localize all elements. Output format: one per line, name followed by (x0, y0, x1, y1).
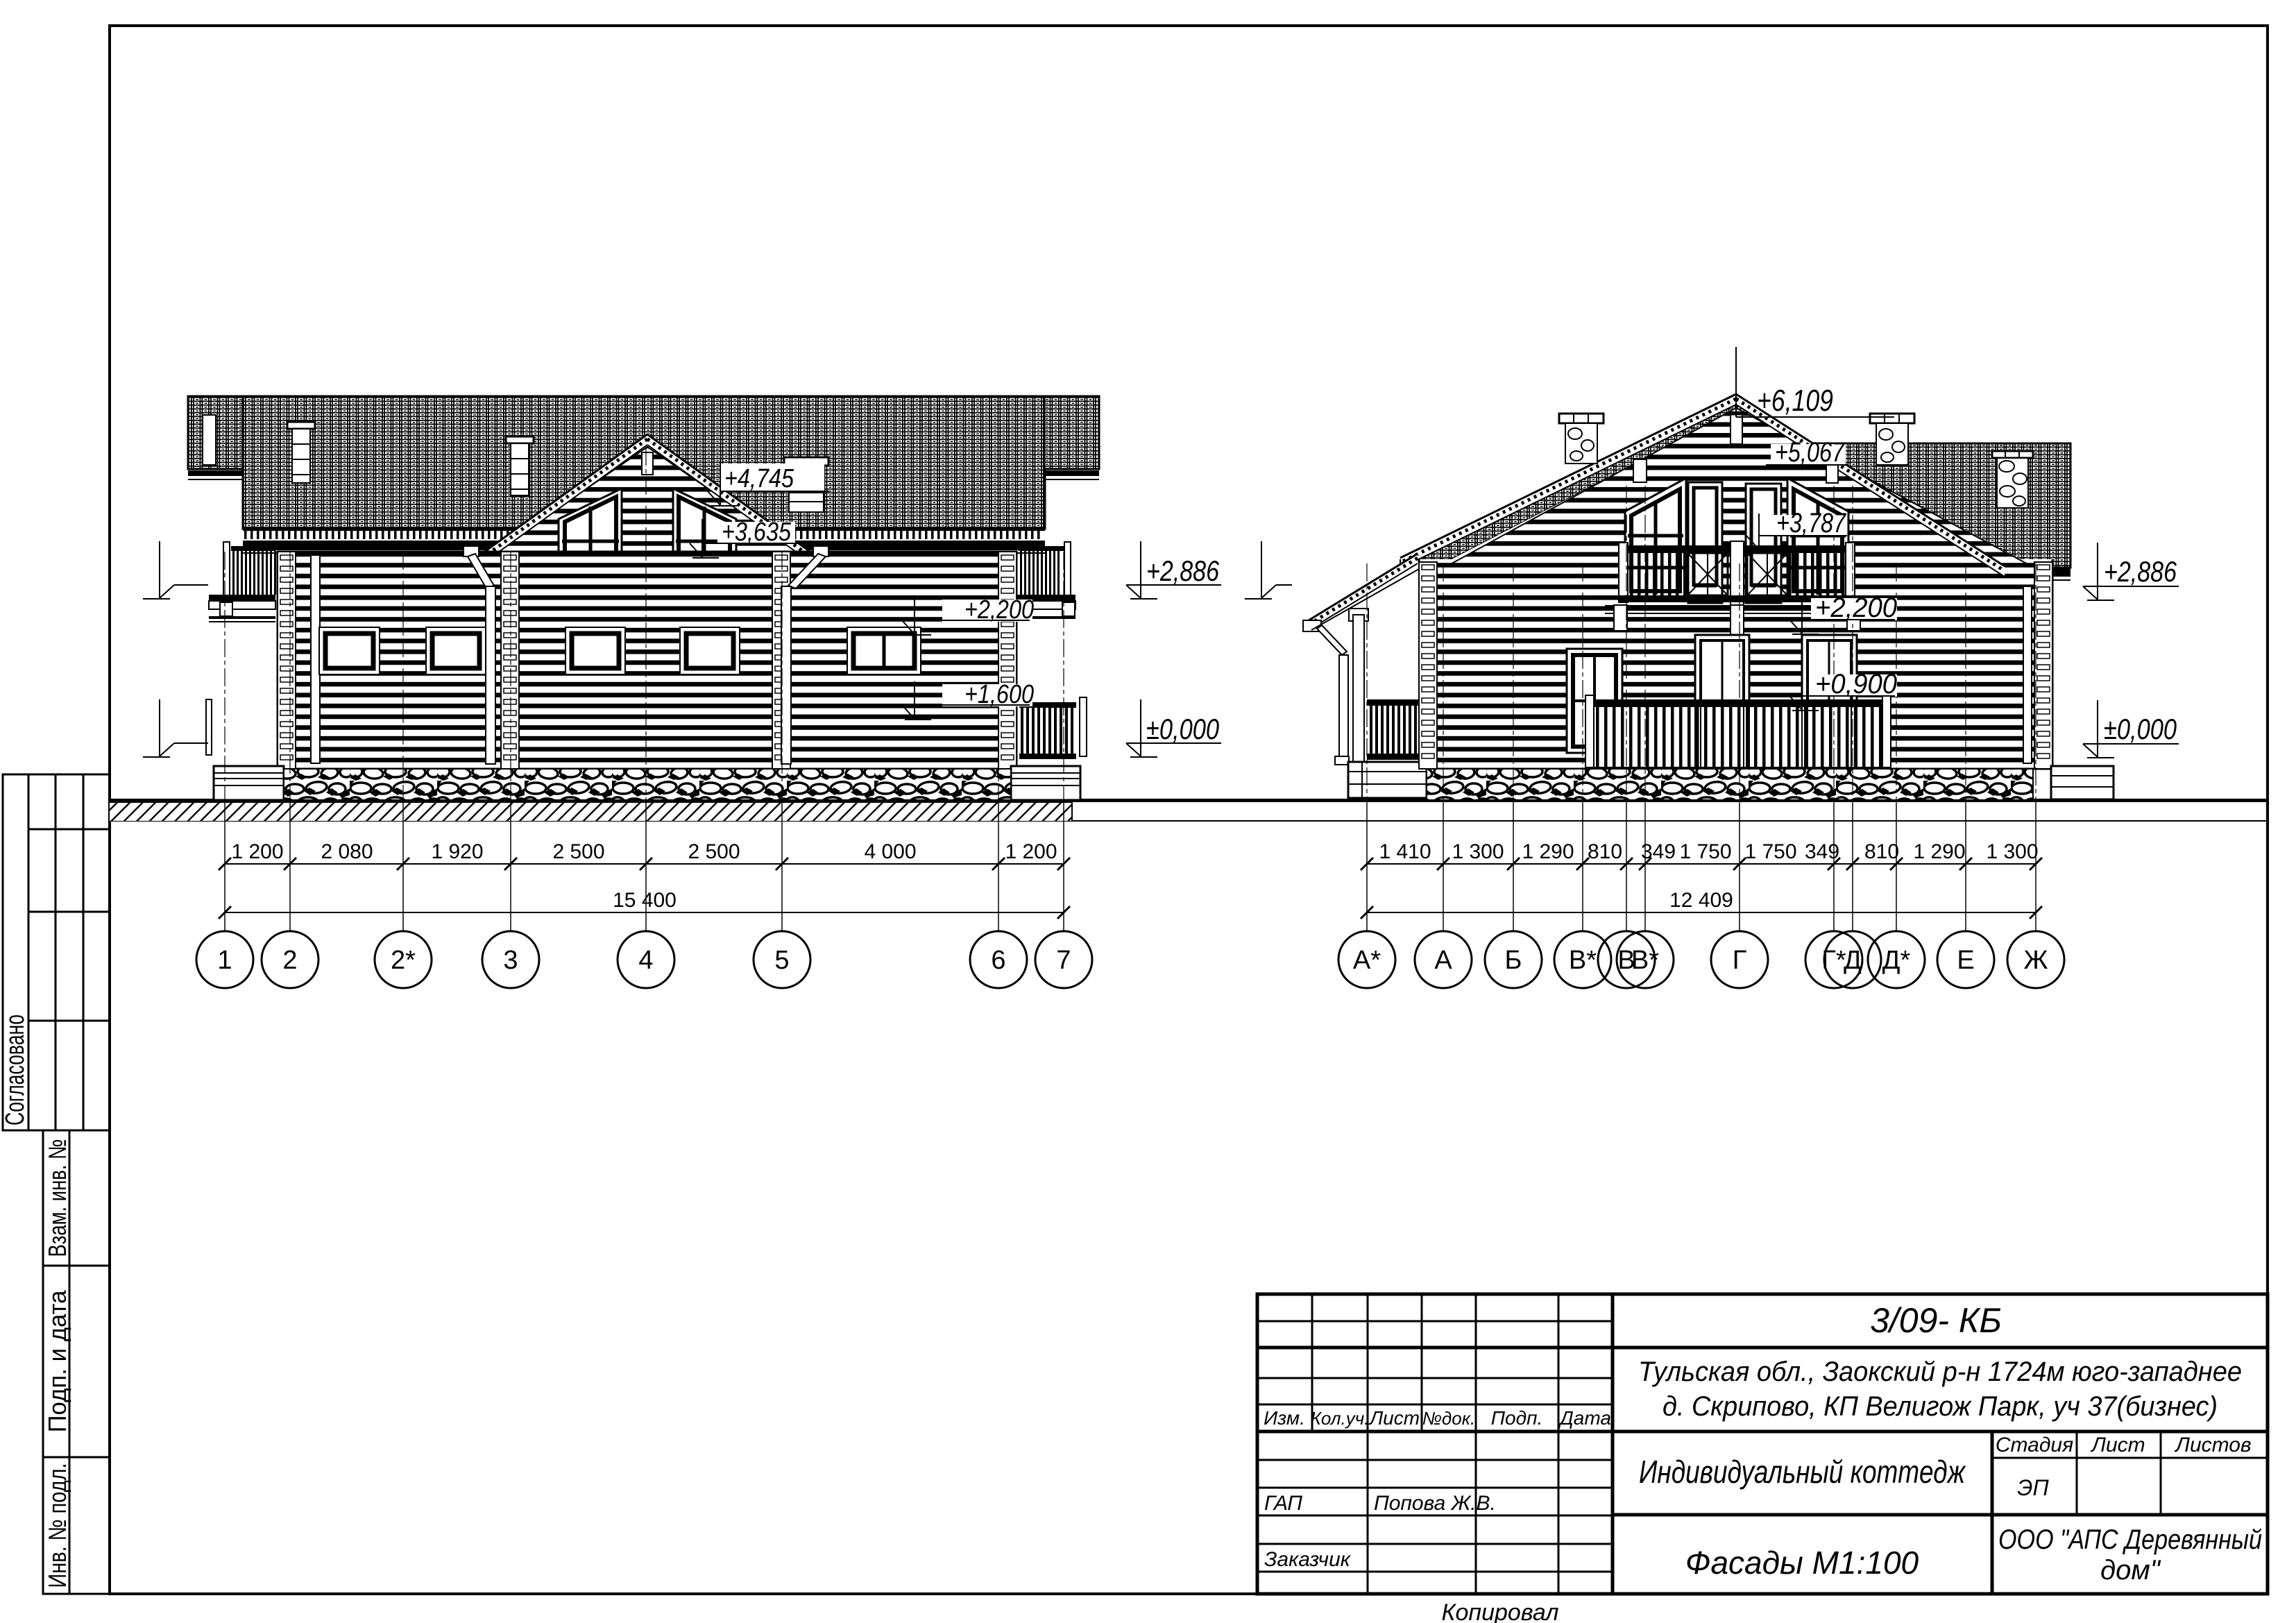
svg-text:Лист: Лист (1368, 1407, 1420, 1429)
svg-text:дом": дом" (2100, 1555, 2161, 1586)
svg-text:Дата: Дата (1558, 1407, 1611, 1429)
svg-text:1 410: 1 410 (1379, 840, 1431, 863)
svg-text:А*: А* (1353, 946, 1381, 975)
svg-text:6: 6 (991, 946, 1005, 975)
svg-text:Копировал: Копировал (1441, 1599, 1558, 1623)
svg-text:2 500: 2 500 (688, 840, 740, 863)
svg-text:1 200: 1 200 (231, 840, 283, 863)
svg-text:349: 349 (1805, 840, 1839, 863)
svg-text:±0,000: ±0,000 (2104, 713, 2177, 745)
svg-text:Кол.уч.: Кол.уч. (1311, 1408, 1370, 1429)
svg-text:Взам. инв. №: Взам. инв. № (43, 1139, 71, 1257)
svg-text:Лист: Лист (2090, 1434, 2145, 1456)
svg-text:810: 810 (1864, 840, 1899, 863)
svg-text:+2,886: +2,886 (2104, 555, 2177, 588)
svg-text:Стадия: Стадия (1996, 1434, 2073, 1456)
svg-text:12 409: 12 409 (1669, 889, 1733, 912)
svg-text:Индивидуальный коттедж: Индивидуальный коттедж (1639, 1454, 1966, 1490)
svg-text:В*: В* (1631, 946, 1659, 975)
svg-text:В*: В* (1569, 946, 1597, 975)
svg-text:+2,886: +2,886 (1146, 554, 1220, 587)
svg-text:4 000: 4 000 (864, 840, 916, 863)
svg-text:7: 7 (1056, 946, 1071, 975)
svg-text:±0,000: ±0,000 (1146, 713, 1220, 745)
svg-text:2*: 2* (391, 946, 416, 975)
svg-text:+3,635: +3,635 (722, 518, 792, 547)
svg-text:+0,900: +0,900 (1815, 669, 1897, 699)
svg-text:Е: Е (1957, 946, 1974, 975)
svg-text:1 750: 1 750 (1744, 840, 1796, 863)
svg-text:Подп. и дата: Подп. и дата (43, 1290, 71, 1433)
svg-text:Инв. № подл.: Инв. № подл. (43, 1463, 71, 1588)
svg-text:3: 3 (503, 946, 518, 975)
svg-text:1 200: 1 200 (1005, 840, 1057, 863)
svg-text:Ж: Ж (2023, 946, 2048, 975)
svg-text:Листов: Листов (2174, 1434, 2251, 1456)
svg-text:ЭП: ЭП (2017, 1475, 2049, 1500)
svg-text:д. Скрипово, КП Велигож Парк,: д. Скрипово, КП Велигож Парк, уч 37(бизн… (1663, 1391, 2218, 1422)
svg-text:3/09- КБ: 3/09- КБ (1870, 1301, 2002, 1340)
svg-text:2 500: 2 500 (552, 840, 604, 863)
svg-text:2: 2 (282, 946, 297, 975)
svg-text:Согласовано: Согласовано (1, 1014, 30, 1125)
svg-text:1 290: 1 290 (1913, 840, 1965, 863)
svg-text:+2,200: +2,200 (1815, 593, 1897, 623)
svg-text:Тульская обл., Заокский р-н 17: Тульская обл., Заокский р-н 1724м юго-за… (1638, 1357, 2242, 1387)
svg-text:1 300: 1 300 (1986, 840, 2038, 863)
svg-text:Б: Б (1505, 946, 1522, 975)
svg-text:ГАП: ГАП (1264, 1492, 1302, 1515)
svg-text:ООО "АПС Деревянный: ООО "АПС Деревянный (1998, 1524, 2262, 1555)
svg-text:2 080: 2 080 (321, 840, 373, 863)
svg-text:5: 5 (774, 946, 789, 975)
svg-text:1: 1 (217, 946, 232, 975)
svg-text:+5,067: +5,067 (1775, 437, 1845, 468)
svg-text:15 400: 15 400 (613, 889, 677, 912)
svg-text:Подп.: Подп. (1491, 1407, 1543, 1429)
svg-text:1 920: 1 920 (431, 840, 483, 863)
svg-text:+4,745: +4,745 (724, 464, 794, 493)
svg-text:810: 810 (1588, 840, 1622, 863)
svg-text:Попова Ж.В.: Попова Ж.В. (1374, 1492, 1496, 1515)
svg-text:Изм.: Изм. (1264, 1407, 1305, 1429)
svg-text:1 290: 1 290 (1522, 840, 1574, 863)
svg-text:Г: Г (1733, 946, 1747, 975)
svg-text:+6,109: +6,109 (1757, 384, 1833, 418)
svg-text:1 300: 1 300 (1452, 840, 1504, 863)
svg-text:Д: Д (1844, 946, 1862, 975)
svg-text:№док.: №док. (1422, 1408, 1476, 1429)
svg-text:349: 349 (1641, 840, 1676, 863)
svg-text:4: 4 (638, 946, 653, 975)
svg-text:Заказчик: Заказчик (1264, 1548, 1352, 1571)
svg-text:Д*: Д* (1882, 946, 1911, 975)
svg-text:Фасады М1:100: Фасады М1:100 (1685, 1545, 1919, 1581)
svg-text:1 750: 1 750 (1679, 840, 1731, 863)
svg-text:+3,787: +3,787 (1776, 508, 1846, 538)
svg-text:А: А (1434, 946, 1452, 975)
